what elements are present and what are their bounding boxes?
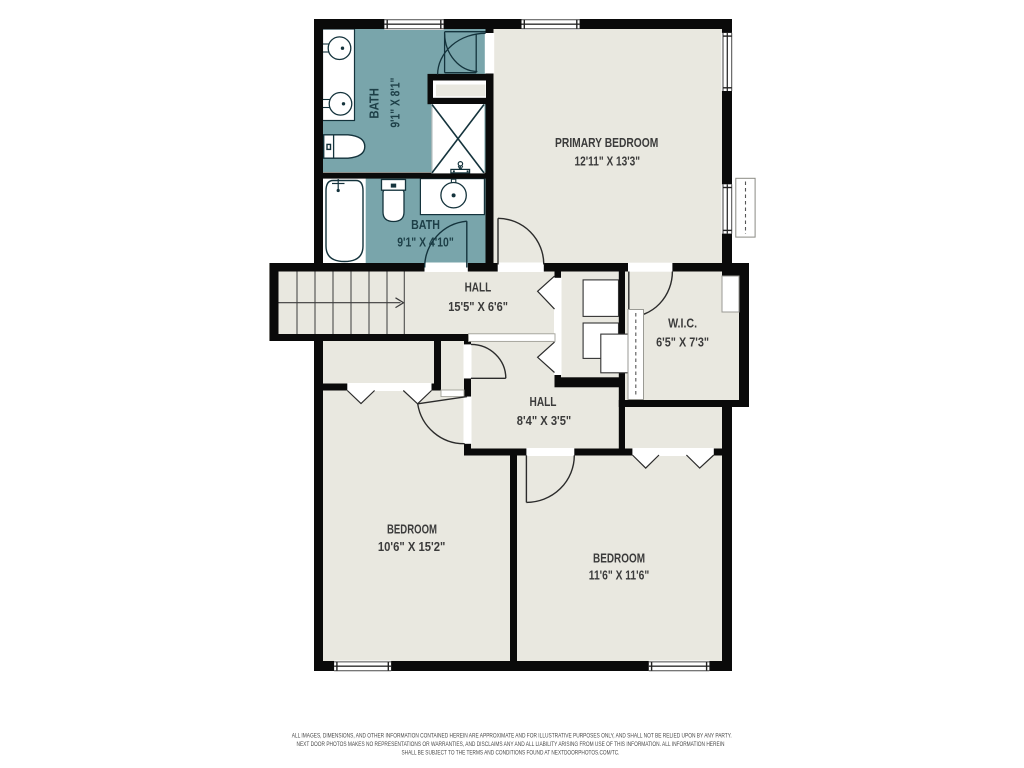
svg-text:15'5" X 6'6": 15'5" X 6'6" [448,300,508,314]
svg-text:6'5" X 7'3": 6'5" X 7'3" [656,336,709,350]
svg-text:BATH: BATH [411,218,440,232]
svg-text:PRIMARY BEDROOM: PRIMARY BEDROOM [555,136,658,150]
svg-text:BATH: BATH [368,88,382,119]
svg-text:HALL: HALL [530,395,557,409]
svg-text:11'6" X 11'6": 11'6" X 11'6" [589,568,649,582]
svg-text:9'1" X 4'10": 9'1" X 4'10" [397,236,454,250]
svg-text:NEXT DOOR PHOTOS MAKES NO REPR: NEXT DOOR PHOTOS MAKES NO REPRESENTATION… [297,741,725,748]
svg-text:BEDROOM: BEDROOM [593,552,645,566]
svg-text:HALL: HALL [465,281,492,295]
svg-text:BEDROOM: BEDROOM [387,523,437,537]
svg-text:ALL IMAGES, DIMENSIONS, AND OT: ALL IMAGES, DIMENSIONS, AND OTHER INFORM… [292,733,732,740]
svg-text:8'4" X 3'5": 8'4" X 3'5" [517,414,572,428]
svg-text:10'6" X 15'2": 10'6" X 15'2" [378,540,446,554]
svg-text:SHALL BE SUBJECT TO THE TERMS: SHALL BE SUBJECT TO THE TERMS AND CONDIT… [402,750,620,757]
svg-text:W.I.C.: W.I.C. [668,317,697,331]
svg-text:12'11" X 13'3": 12'11" X 13'3" [575,154,641,168]
svg-text:9'1" X 8'1": 9'1" X 8'1" [388,78,402,128]
